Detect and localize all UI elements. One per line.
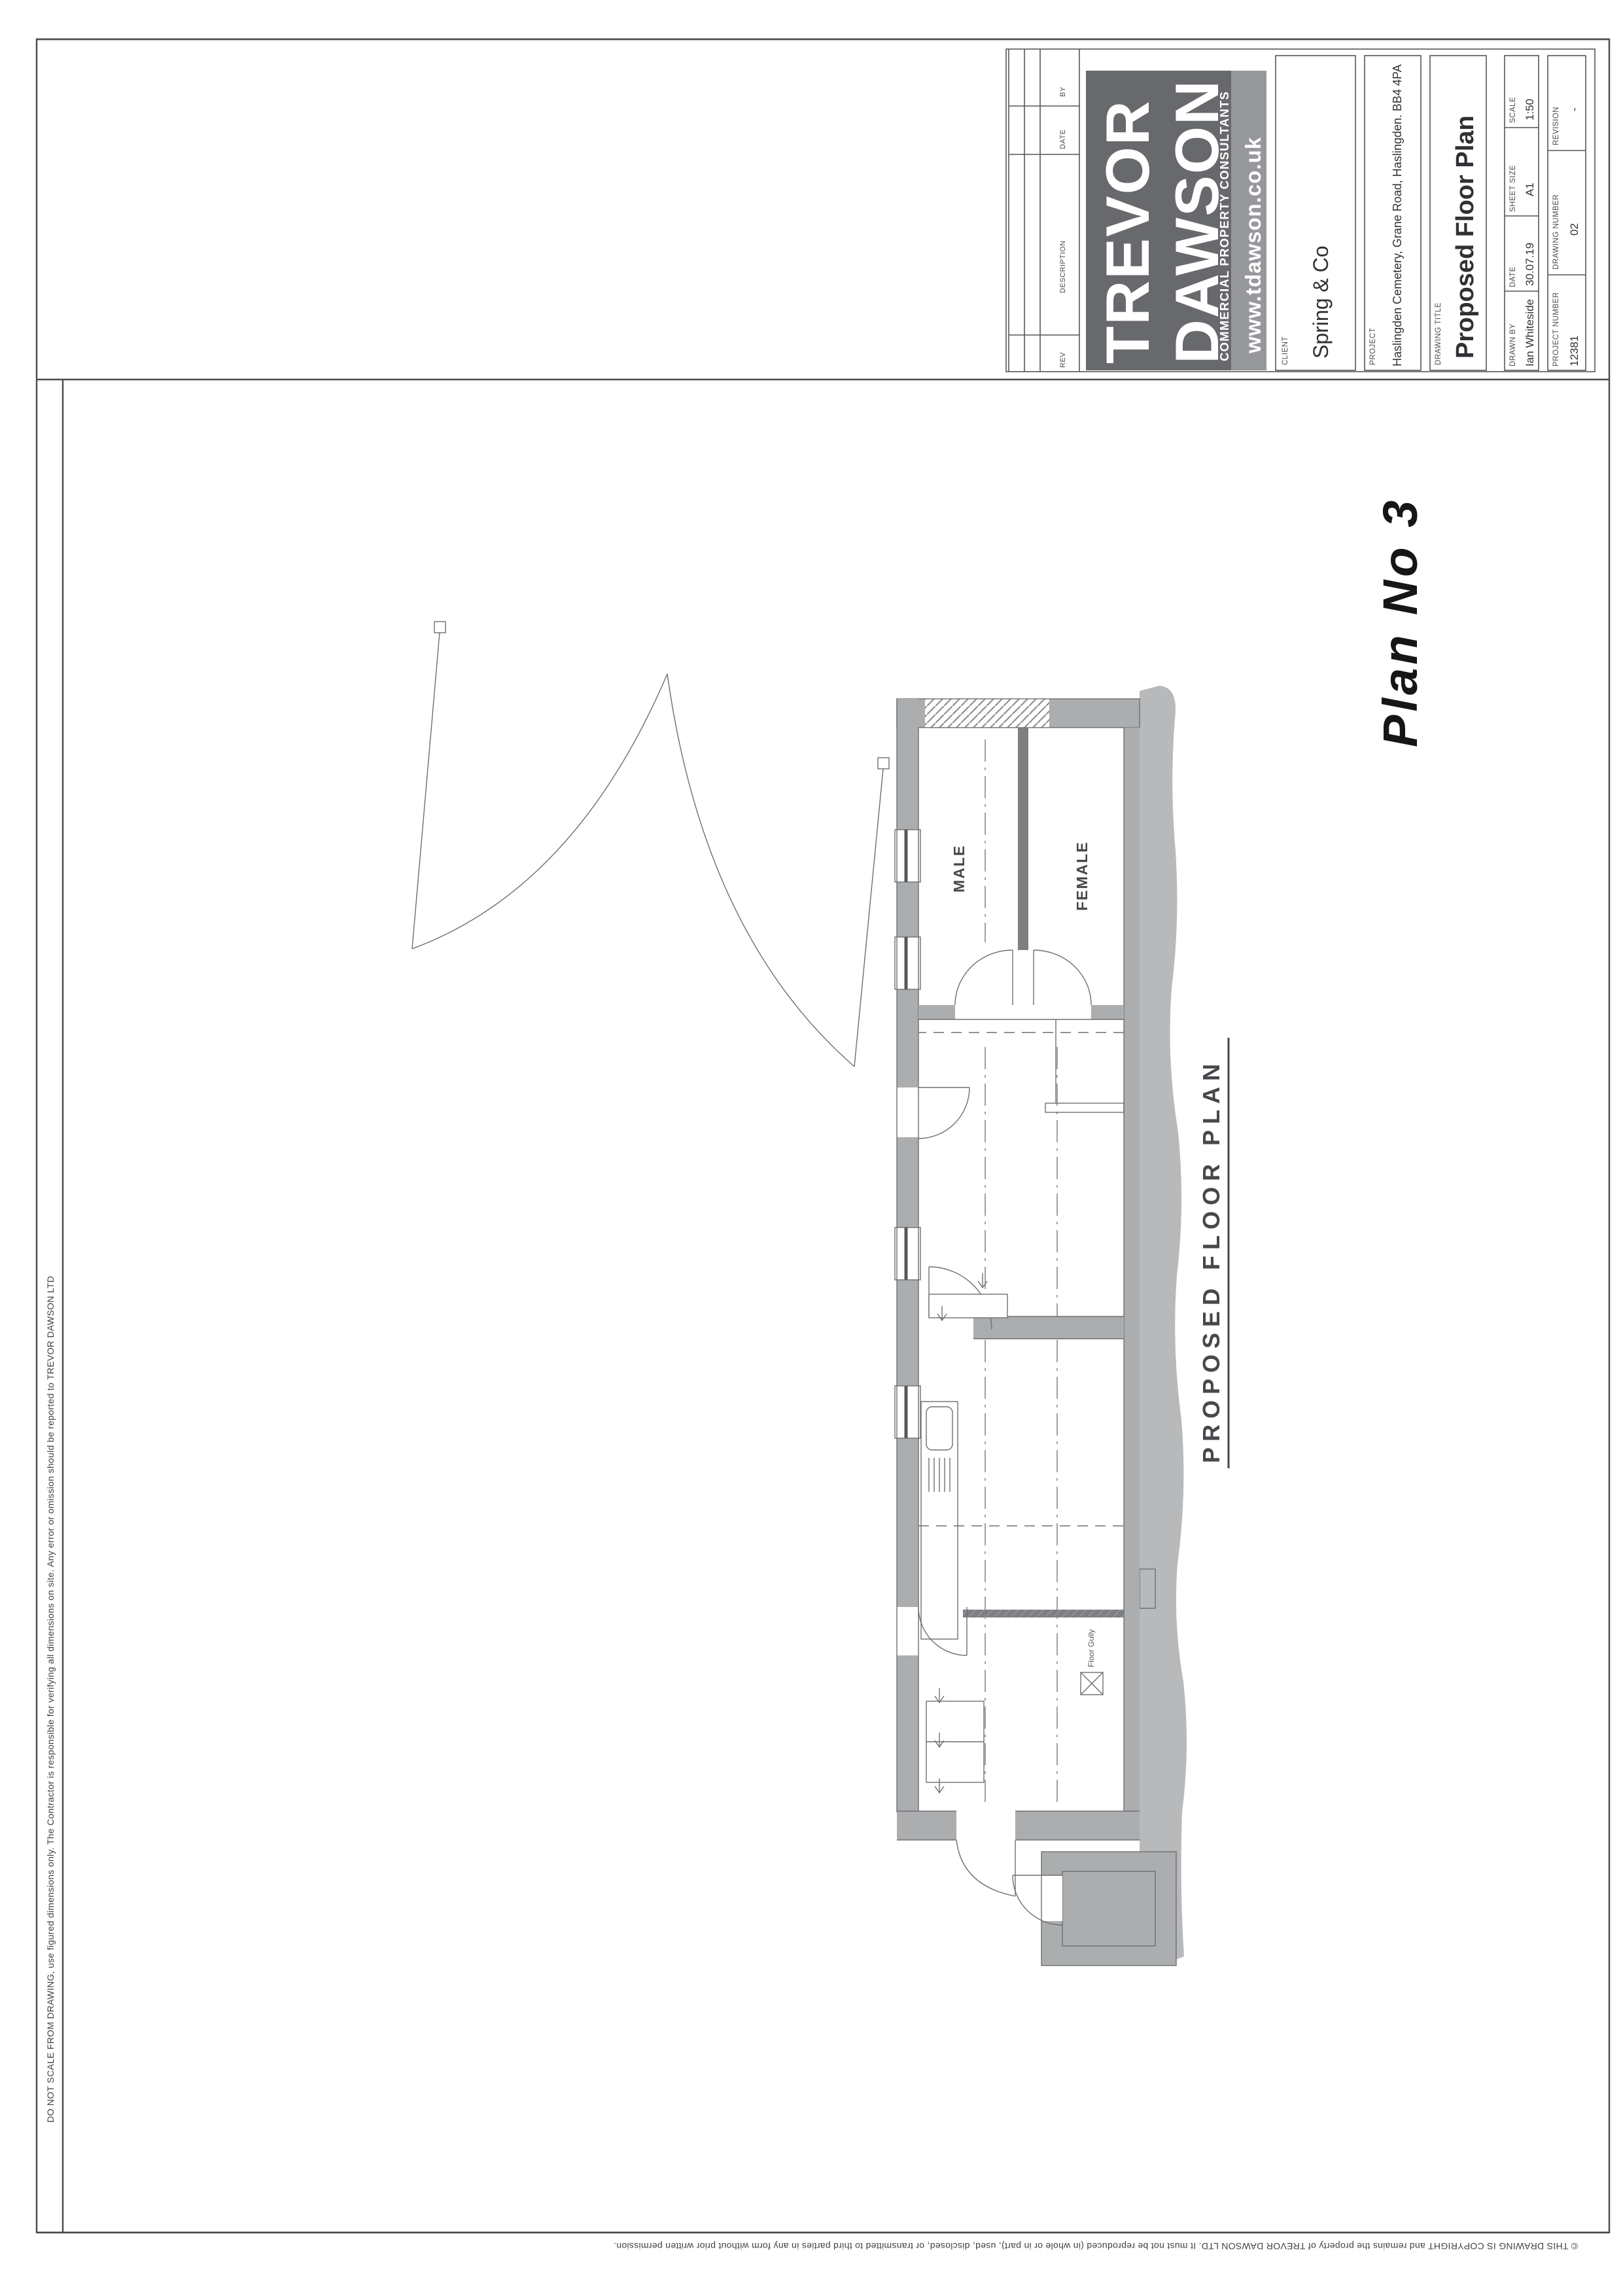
client-value: Spring & Co bbox=[1309, 245, 1333, 359]
rev-col-date: DATE bbox=[1059, 129, 1067, 149]
drawing-title-box: DRAWING TITLE Proposed Floor Plan bbox=[1430, 56, 1486, 370]
drawn-by-value: Ian Whiteside bbox=[1524, 299, 1536, 366]
logo-website: www.tdawson.co.uk bbox=[1241, 137, 1265, 354]
company-logo: TREVOR DAWSON COMMERCIAL PROPERTY CONSUL… bbox=[1086, 71, 1266, 370]
floor-gully-label: Floor Gully bbox=[1087, 1629, 1096, 1667]
kitchen-sink bbox=[921, 1402, 958, 1639]
interior-partitions bbox=[963, 1019, 1124, 1617]
porch bbox=[1013, 1852, 1176, 1966]
drawing-number-value: 02 bbox=[1568, 223, 1580, 236]
copyright-note: © THIS DRAWING IS COPYRIGHT and remains … bbox=[614, 2241, 1578, 2252]
revision-value: - bbox=[1568, 107, 1580, 111]
rev-col-by: BY bbox=[1059, 86, 1067, 97]
sheet-border bbox=[37, 39, 1609, 2233]
meta-row-1: SCALE 1:50 SHEET SIZE A1 DATE 30.07.19 D… bbox=[1505, 56, 1539, 370]
sheet-size-label: SHEET SIZE bbox=[1509, 165, 1517, 212]
project-label: PROJECT bbox=[1369, 328, 1377, 365]
do-not-scale-note: DO NOT SCALE FROM DRAWING, use figured d… bbox=[45, 1276, 56, 2123]
meta-row-2: REVISION - DRAWING NUMBER 02 PROJECT NUM… bbox=[1548, 56, 1586, 370]
date-value: 30.07.19 bbox=[1524, 243, 1536, 286]
gate-swings bbox=[412, 622, 889, 1067]
project-value: Haslingden Cemetery, Grane Road, Hasling… bbox=[1391, 64, 1404, 366]
rough-band bbox=[1140, 686, 1187, 1966]
sheet-size-value: A1 bbox=[1524, 183, 1536, 196]
revision-table: BY DATE DESCRIPTION REV bbox=[1009, 49, 1079, 372]
toilet-rooms: MALE FEMALE bbox=[918, 728, 1124, 1019]
svg-text:PROPOSED FLOOR PLAN: PROPOSED FLOOR PLAN bbox=[1198, 1058, 1225, 1463]
entrance-door bbox=[956, 1840, 1015, 1896]
drawing-number-label: DRAWING NUMBER bbox=[1552, 194, 1560, 270]
female-room-label: FEMALE bbox=[1073, 841, 1091, 911]
project-number-value: 12381 bbox=[1568, 336, 1580, 366]
fixtures bbox=[926, 1273, 1007, 1793]
client-box: CLIENT Spring & Co bbox=[1276, 56, 1355, 370]
drawing-sheet: BY DATE DESCRIPTION REV TREVOR DAWSON CO… bbox=[0, 0, 1623, 2296]
interior-doors bbox=[918, 1087, 992, 1655]
plan-caption: PROPOSED FLOOR PLAN bbox=[1198, 1038, 1229, 1468]
rev-col-description: DESCRIPTION bbox=[1059, 240, 1067, 293]
scale-value: 1:50 bbox=[1524, 99, 1536, 120]
scale-label: SCALE bbox=[1509, 97, 1517, 123]
floor-plan: MALE FEMALE bbox=[412, 497, 1427, 1966]
logo-tagline: COMMERCIAL PROPERTY CONSULTANTS bbox=[1217, 91, 1231, 361]
client-label: CLIENT bbox=[1282, 336, 1289, 365]
rev-col-rev: REV bbox=[1059, 352, 1067, 368]
revision-label: REVISION bbox=[1552, 107, 1560, 145]
project-number-label: PROJECT NUMBER bbox=[1552, 292, 1560, 367]
drawing-title-value: Proposed Floor Plan bbox=[1452, 115, 1479, 359]
title-block: BY DATE DESCRIPTION REV TREVOR DAWSON CO… bbox=[1006, 49, 1595, 372]
male-room-label: MALE bbox=[951, 845, 968, 892]
project-box: PROJECT Haslingden Cemetery, Grane Road,… bbox=[1365, 56, 1421, 370]
drawing-title-label: DRAWING TITLE bbox=[1435, 302, 1442, 365]
drawn-by-label: DRAWN BY bbox=[1509, 323, 1517, 366]
logo-line1: TREVOR bbox=[1093, 99, 1162, 364]
handwritten-note: Plan No 3 bbox=[1373, 497, 1427, 747]
date-label: DATE bbox=[1509, 266, 1517, 287]
floor-gully: Floor Gully bbox=[1081, 1629, 1103, 1695]
